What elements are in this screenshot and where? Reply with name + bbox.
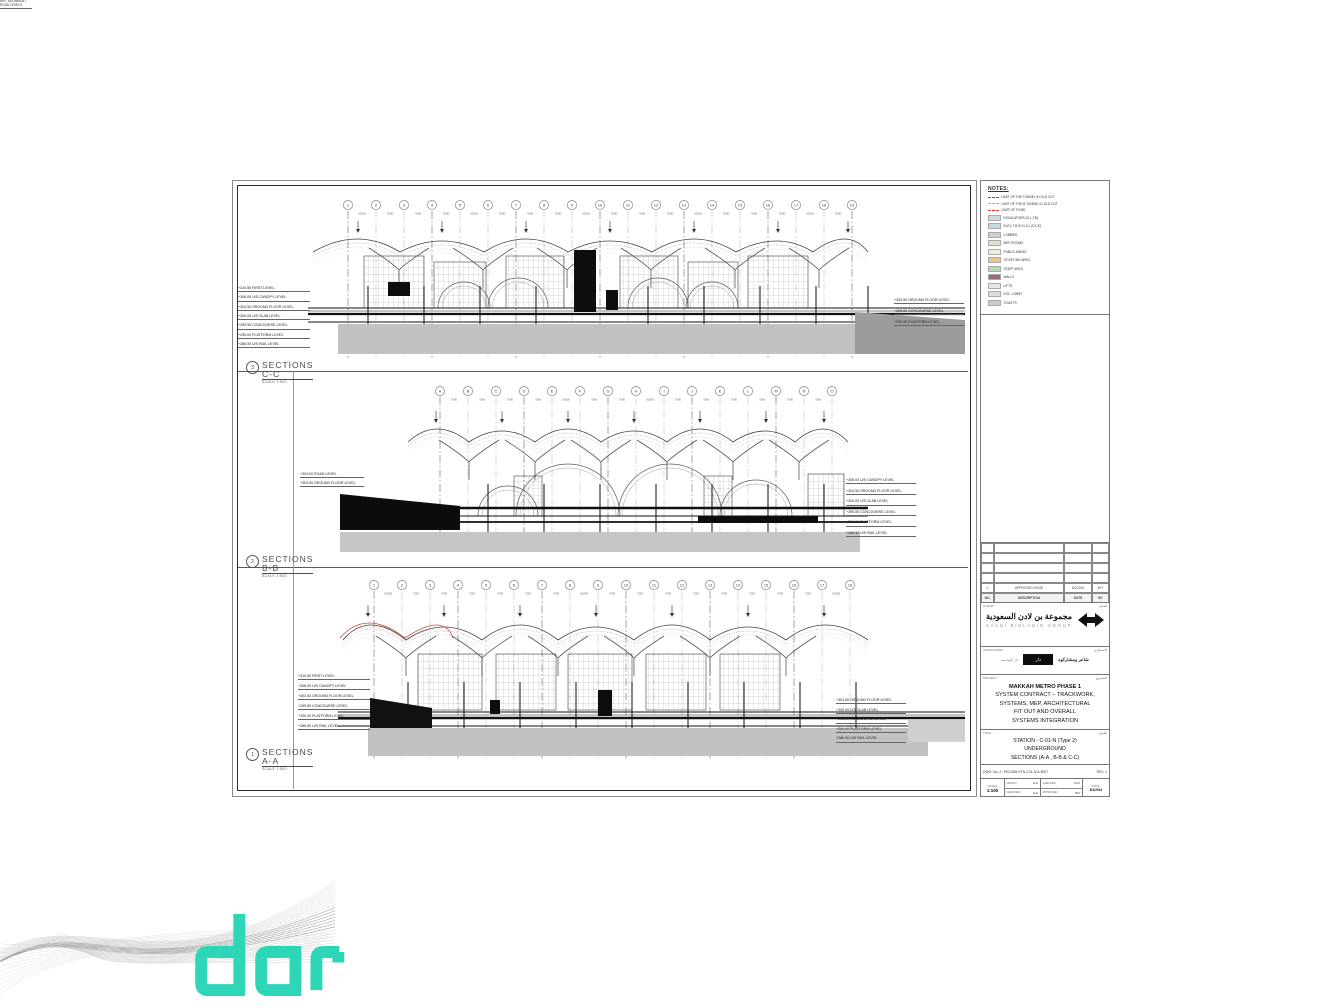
section-title-text: SECTIONS B-B xyxy=(262,555,313,574)
grid-bubble-label: I xyxy=(663,389,664,394)
level-label: +310.50 FIRST LEVEL xyxy=(238,287,310,292)
canopy-path xyxy=(408,441,848,454)
grid-bubble-label: 13 xyxy=(708,583,713,588)
legend-color-swatch xyxy=(988,232,1001,238)
level-label: +286.50 U/S RAIL LEVEL xyxy=(298,725,370,730)
grid-dimension: 7500 xyxy=(667,211,674,215)
legend-row: LIMIT OF THE B TUNNEL IG GLD CUT xyxy=(988,202,1109,206)
core-element xyxy=(606,290,618,310)
level-label: +290.00 PLATFORM LEVEL xyxy=(836,728,906,733)
canopy-path xyxy=(343,625,868,640)
canopy-node xyxy=(698,419,702,423)
grid-dimension: 10000 xyxy=(470,211,478,215)
grid-bubble-label: 15 xyxy=(738,203,743,208)
red-canopy-path xyxy=(340,623,453,638)
revision-cell xyxy=(1064,553,1092,563)
revision-cell xyxy=(1064,573,1092,583)
glazed-facade xyxy=(704,476,732,516)
info-cell-date: DATE6/1/2014 xyxy=(1083,779,1109,797)
canopy-node xyxy=(594,613,598,617)
info-value: 1:100 xyxy=(987,788,998,793)
consultant-logo-box: دار xyxy=(1023,654,1053,665)
project-title-lines: MAKKAH METRO PHASE 1SYSTEM CONTRACT – TR… xyxy=(981,683,1109,726)
title-label-ar: العنوان xyxy=(1098,731,1107,735)
level-label: +300.00 U/S SLAB LEVEL xyxy=(846,500,916,505)
revision-cell xyxy=(981,543,994,553)
level-label: +286.50 U/S RAIL LEVEL xyxy=(846,532,916,537)
legend-row: PUBLIC AREAS xyxy=(988,249,1109,255)
canopy-node xyxy=(692,229,696,233)
level-label: +304.00 ROAD LEVEL xyxy=(300,473,364,478)
grid-bubble-label: M xyxy=(774,389,777,394)
project-title-line: MAKKAH METRO PHASE 1 xyxy=(981,683,1109,692)
consultant-right-text: شاعر ومشاركوه xyxy=(1058,657,1089,663)
glazed-facade xyxy=(688,262,738,308)
revision-cell xyxy=(1064,543,1092,553)
glazed-facade xyxy=(514,476,542,516)
revision-cell: 0 xyxy=(981,583,994,593)
consultant-logo-text: دار xyxy=(1036,657,1041,663)
info-pair: DATE6/1/2014 xyxy=(1083,779,1109,797)
drawing-title-block: TITLE : العنوان STATION - C-01-N (Type 2… xyxy=(981,729,1109,765)
grid-dimension: 10000 xyxy=(562,397,570,401)
glazed-facade xyxy=(418,654,482,710)
revision-cell xyxy=(981,573,994,583)
level-label: +295.50 CONCOURSE LEVEL xyxy=(846,511,916,516)
revision-cell xyxy=(981,553,994,563)
grid-dimension: 7500 xyxy=(535,397,542,401)
revision-number: REV. 1 xyxy=(1097,770,1107,774)
grid-bubble-label: 12 xyxy=(654,203,659,208)
info-label: CHECKED xyxy=(1043,782,1056,785)
client-name-arabic: مجموعة بن لادن السعودية xyxy=(986,612,1073,621)
grid-dimension: 10000 xyxy=(358,211,366,215)
dar-letter-r xyxy=(316,952,339,990)
level-label: +306.00 U/S CANOPY LEVEL xyxy=(846,479,916,484)
drawing-title-line: STATION - C-01-N (Type 2) xyxy=(981,737,1109,745)
section-scale-text: SCALE 1:500 xyxy=(262,574,313,578)
canopy-node xyxy=(822,419,826,423)
grid-dimension: 7500 xyxy=(591,397,598,401)
detail-number-bubble: 3 xyxy=(246,361,259,374)
info-label: DRAWN xyxy=(1007,782,1017,785)
grid-dimension: 7500 xyxy=(731,397,738,401)
grid-dimension: 7500 xyxy=(479,397,486,401)
info-cell-drawn: DRAWNA.A.DESIGNEDA.A. xyxy=(1005,779,1041,797)
canopy-node xyxy=(776,229,780,233)
revision-cell xyxy=(981,563,994,573)
legend-row: LIFTS xyxy=(988,283,1109,289)
grid-dimension: 7500 xyxy=(553,591,560,595)
level-label: +290.00 PLATFORM LEVEL xyxy=(238,334,310,339)
client-label-ar: العميل xyxy=(1099,604,1107,608)
section-scale-text: SCALE 1:500 xyxy=(262,767,313,771)
revision-cell: W.Y xyxy=(1092,583,1109,593)
grid-dimension: 7500 xyxy=(387,211,394,215)
glazed-facade xyxy=(720,654,780,710)
legend-color-swatch xyxy=(988,274,1001,280)
legend-rows: LIMIT OF THE TUNNEL ID GLD CUTLIMIT OF T… xyxy=(981,195,1109,306)
info-label: APPROVED xyxy=(1043,791,1058,794)
grid-bubble-label: B xyxy=(467,389,470,394)
project-label: PROJECT : xyxy=(983,676,999,680)
grid-dimension: 7500 xyxy=(441,591,448,595)
grid-dimension: 7500 xyxy=(693,591,700,595)
red-canopy-path xyxy=(340,627,453,642)
grid-bubble-label: 10 xyxy=(624,583,629,588)
grid-dimension: 7500 xyxy=(749,591,756,595)
legend-dash-swatch xyxy=(988,197,999,198)
level-label: +290.00 PLATFORM LEVEL xyxy=(894,321,964,326)
grid-bubble-label: C xyxy=(495,389,498,394)
grid-bubble-label: 13 xyxy=(682,203,687,208)
info-rows: DRAWNA.A.DESIGNEDA.A. xyxy=(1005,779,1040,797)
canopy-path xyxy=(408,429,848,442)
drawing-title-line: UNDERGROUND xyxy=(981,745,1109,753)
legend-row: TOILETS xyxy=(988,300,1109,306)
canopy-node xyxy=(822,613,826,617)
grid-dimension: 7500 xyxy=(777,591,784,595)
title-label: TITLE : xyxy=(983,731,993,735)
grid-bubble-label: A xyxy=(439,389,442,394)
project-title-line: SYSTEMS INTEGRATION xyxy=(981,717,1109,726)
legend-row: WALLS xyxy=(988,274,1109,280)
grid-bubble-label: 15 xyxy=(764,583,769,588)
grid-bubble-label: E xyxy=(551,389,554,394)
canopy-node xyxy=(366,613,370,617)
reference-note: REF. ALIGNMENT ROAD LEVELS xyxy=(0,0,32,9)
level-label: +310.50 FIRST LEVEL xyxy=(298,675,370,680)
grid-dimension: 7500 xyxy=(835,211,842,215)
consultant-label: CONSULTANT : xyxy=(983,648,1005,652)
level-label: +290.00 PLATFORM LEVEL xyxy=(846,521,916,526)
legend-heading: NOTES: xyxy=(988,186,1109,192)
grid-bubble-label: N xyxy=(803,389,806,394)
legend-row: TICKETING AREA xyxy=(988,257,1109,263)
project-title-line: FIT OUT AND OVERALL xyxy=(981,708,1109,717)
grid-bubble-label: 14 xyxy=(736,583,741,588)
legend-row: ELEV T-B ID N-3-L (D-CE) xyxy=(988,223,1109,229)
canopy-node xyxy=(846,229,850,233)
canopy-node xyxy=(518,613,522,617)
legend-entry-label: TICKETING AREA xyxy=(1004,258,1030,262)
grid-dimension: 7500 xyxy=(665,591,672,595)
level-label: +286.50 U/S RAIL LEVEL xyxy=(238,343,310,348)
info-row: DESIGNEDA.A. xyxy=(1005,788,1040,798)
legend-row: STAFF AREA xyxy=(988,266,1109,272)
canopy-node xyxy=(524,229,528,233)
section-title-text-group: SECTIONS A-ASCALE 1:500 xyxy=(262,748,313,771)
revision-cell xyxy=(994,553,1064,563)
project-title-line: SYSTEM CONTRACT – TRACKWORK, xyxy=(981,691,1109,700)
grid-dimension: 10000 xyxy=(384,591,392,595)
underground-mass xyxy=(908,720,965,742)
info-row: APPROVEDW.Y xyxy=(1041,788,1082,798)
legend-dash-swatch xyxy=(988,203,999,204)
grid-dimension: 7500 xyxy=(507,397,514,401)
grid-dimension: 7500 xyxy=(469,591,476,595)
info-grid: SCALE1:100DRAWNA.A.DESIGNEDA.A.CHECKEDN.… xyxy=(981,778,1109,797)
legend-color-swatch xyxy=(988,249,1001,255)
level-label: +303.50 GROUND FLOOR LEVEL xyxy=(298,695,370,700)
underground-mass xyxy=(340,532,860,552)
grid-dimension: 7500 xyxy=(527,211,534,215)
grid-dimension: 7500 xyxy=(451,397,458,401)
legend-color-swatch xyxy=(988,291,1001,297)
legend-entry-label: ESC. LOBBY xyxy=(1004,292,1023,296)
canopy-node xyxy=(356,229,360,233)
legend-color-swatch xyxy=(988,215,1001,221)
info-row: DRAWNA.A. xyxy=(1005,779,1040,788)
grid-dimension: 7500 xyxy=(815,397,822,401)
revision-cell: APPROVED ISSUE xyxy=(994,583,1064,593)
grid-dimension: 7500 xyxy=(787,397,794,401)
revision-cell xyxy=(1064,563,1092,573)
drawing-title-lines: STATION - C-01-N (Type 2)UNDERGROUNDSECT… xyxy=(981,737,1109,762)
legend-entry-label: LIMIT OF THE B TUNNEL IG GLD CUT xyxy=(1002,202,1058,206)
client-block: CLIENT : العميل مجموعة بن لادن السعودية … xyxy=(981,602,1109,647)
info-cell-scale: SCALE1:100 xyxy=(981,779,1005,797)
arch-outline xyxy=(724,484,788,516)
level-label: +303.50 GROUND FLOOR LEVEL xyxy=(300,482,364,487)
legend-row: LIMIT OF TH-BD xyxy=(988,208,1109,212)
legend-row: LOBBIES xyxy=(988,232,1109,238)
core-element xyxy=(388,282,410,296)
canopy-node xyxy=(608,229,612,233)
canopy-node xyxy=(434,419,438,423)
glazed-facade xyxy=(496,654,556,710)
legend-entry-label: ESCALATORS (D-L-TB) xyxy=(1004,216,1038,220)
glazed-facade xyxy=(506,256,564,308)
core-element xyxy=(598,690,612,716)
level-label: +300.00 U/S SLAB LEVEL xyxy=(238,315,310,320)
legend: NOTES: LIMIT OF THE TUNNEL ID GLD CUTLIM… xyxy=(981,181,1109,315)
legend-color-swatch xyxy=(988,223,1001,229)
consultant-left-text: دار الهندسة xyxy=(1001,658,1018,662)
sbg-arrow-logo xyxy=(1078,612,1104,628)
grid-dimension: 7500 xyxy=(751,211,758,215)
drawing-number: DWG. No. 2 : PK3-MM-STN-C01-N-A-5007 xyxy=(983,770,1048,774)
level-label: +306.00 U/S CANOPY LEVEL xyxy=(238,296,310,301)
legend-entry-label: LIFTS xyxy=(1004,284,1013,288)
legend-entry-label: WALLS xyxy=(1004,275,1015,279)
legend-color-swatch xyxy=(988,240,1001,246)
dar-letter-d xyxy=(201,914,245,990)
grid-dimension: 7500 xyxy=(639,211,646,215)
info-pair: SCALE1:100 xyxy=(981,779,1004,797)
info-cell-checked: CHECKEDN.O.APPROVEDW.Y xyxy=(1041,779,1083,797)
project-block: PROJECT : المشروع MAKKAH METRO PHASE 1SY… xyxy=(981,674,1109,730)
project-title-line: SYSTEMS, MEP, ARCHITECTURAL xyxy=(981,700,1109,709)
glazed-facade xyxy=(646,654,706,710)
grid-bubble-label: 17 xyxy=(820,583,825,588)
drawing-number-row: DWG. No. 2 : PK3-MM-STN-C01-N-A-5007 REV… xyxy=(981,764,1109,778)
core-element xyxy=(490,700,500,714)
level-label: +295.50 CONCOURSE LEVEL xyxy=(298,705,370,710)
glazed-facade xyxy=(620,256,678,308)
legend-color-swatch xyxy=(988,283,1001,289)
legend-entry-label: PUBLIC AREAS xyxy=(1004,250,1027,254)
level-label: +303.50 GROUND FLOOR LEVEL xyxy=(894,299,964,304)
glazed-facade xyxy=(748,256,808,308)
level-label: +303.50 GROUND FLOOR LEVEL xyxy=(238,306,310,311)
section-drawing-C-C: 1000075007500750010000750075007500100007… xyxy=(268,190,968,368)
glazed-facade xyxy=(434,262,486,308)
grid-bubble-label: H xyxy=(635,389,638,394)
grid-bubble-label: 17 xyxy=(794,203,799,208)
grid-dimension: 7500 xyxy=(443,211,450,215)
legend-entry-label: LOBBIES xyxy=(1004,233,1018,237)
canopy-path xyxy=(408,433,848,446)
level-label: +303.50 GROUND FLOOR LEVEL xyxy=(846,490,916,495)
title-block-panel: NOTES: LIMIT OF THE TUNNEL ID GLD CUTLIM… xyxy=(980,180,1110,797)
project-label-ar: المشروع xyxy=(1096,676,1107,680)
canopy-node xyxy=(632,419,636,423)
canopy-node xyxy=(746,613,750,617)
section-divider-2 xyxy=(238,567,968,568)
revision-cell xyxy=(1092,553,1109,563)
legend-color-swatch xyxy=(988,266,1001,272)
grid-dimension: 7500 xyxy=(721,591,728,595)
grid-dimension: 7500 xyxy=(499,211,506,215)
grid-bubble-label: 18 xyxy=(822,203,827,208)
grid-dimension: 7500 xyxy=(723,211,730,215)
grid-dimension: 7500 xyxy=(805,591,812,595)
legend-entry-label: STAFF AREA xyxy=(1004,267,1023,271)
legend-color-swatch xyxy=(988,257,1001,263)
section-title-text: SECTIONS A-A xyxy=(262,748,313,767)
grid-dimension: 7500 xyxy=(759,397,766,401)
grid-bubble-label: 12 xyxy=(680,583,685,588)
grid-bubble-label: 18 xyxy=(848,583,853,588)
info-value: N.O. xyxy=(1075,781,1081,785)
underground-mass xyxy=(338,324,898,354)
section-title-text-group: SECTIONS C-CSCALE 1:500 xyxy=(262,361,313,384)
canopy-node xyxy=(764,419,768,423)
canopy-node xyxy=(566,419,570,423)
revision-cell xyxy=(1092,563,1109,573)
info-row: CHECKEDN.O. xyxy=(1041,779,1082,788)
grid-dimension: 10000 xyxy=(832,591,840,595)
revision-cell xyxy=(994,543,1064,553)
section-divider-1 xyxy=(238,371,968,372)
grid-bubble-label: 10 xyxy=(598,203,603,208)
grid-dimension: 10000 xyxy=(582,211,590,215)
section-title-text-group: SECTIONS B-BSCALE 1:500 xyxy=(262,555,313,578)
annotation-overlays: +310.50 FIRST LEVEL+306.00 U/S CANOPY LE… xyxy=(0,0,32,9)
section-title-B-B: 2SECTIONS B-BSCALE 1:500 xyxy=(246,555,313,578)
grid-dimension: 10000 xyxy=(646,397,654,401)
legend-entry-label: ELEV T-B ID N-3-L (D-CE) xyxy=(1004,224,1042,228)
level-label: +300.00 U/S SLAB LEVEL xyxy=(836,709,906,714)
grid-dimension: 7500 xyxy=(555,211,562,215)
grid-bubble-label: J xyxy=(691,389,693,394)
canopy-node xyxy=(500,419,504,423)
revision-table: 0APPROVED ISSUE6/1/2014W.YNO.DESCRIPTION… xyxy=(981,542,1109,603)
legend-row: MEP ROOMS xyxy=(988,240,1109,246)
grid-dimension: 10000 xyxy=(694,211,702,215)
legend-entry-label: LIMIT OF TH-BD xyxy=(1002,208,1026,212)
info-value: 6/1/2014 xyxy=(1090,788,1102,792)
grid-dimension: 10000 xyxy=(580,591,588,595)
grid-bubble-label: 14 xyxy=(710,203,715,208)
section-title-C-C: 3SECTIONS C-CSCALE 1:500 xyxy=(246,361,313,384)
grid-dimension: 7500 xyxy=(497,591,504,595)
legend-entry-label: MEP ROOMS xyxy=(1004,241,1024,245)
grid-dimension: 7500 xyxy=(779,211,786,215)
page: { "brand": {"logo_text": "dar", "teal": … xyxy=(0,0,1344,1008)
grid-dimension: 7500 xyxy=(619,397,626,401)
section-mass xyxy=(340,494,460,530)
level-label: +290.00 PLATFORM LEVEL xyxy=(298,715,370,720)
section-scale-text: SCALE 1:500 xyxy=(262,380,313,384)
grid-bubble-label: G xyxy=(606,389,609,394)
grid-dimension: 10000 xyxy=(806,211,814,215)
revision-cell xyxy=(1092,573,1109,583)
grid-dimension: 7500 xyxy=(703,397,710,401)
detail-number-bubble: 1 xyxy=(246,748,259,761)
legend-row: ESC. LOBBY xyxy=(988,291,1109,297)
level-label: +303.50 GROUND FLOOR LEVEL xyxy=(836,699,906,704)
info-label: DESIGNED xyxy=(1007,791,1021,794)
grid-bubble-label: K xyxy=(719,389,722,394)
consultant-label-ar: الاستشاري xyxy=(1094,648,1107,652)
level-label: +295.50 CONCOURSE LEVEL xyxy=(238,324,310,329)
level-label: +295.50 CONCOURSE LEVEL xyxy=(894,310,964,315)
canopy-node xyxy=(670,613,674,617)
legend-color-swatch xyxy=(988,300,1001,306)
grid-dimension: 7500 xyxy=(609,591,616,595)
grid-dimension: 7500 xyxy=(675,397,682,401)
info-rows: CHECKEDN.O.APPROVEDW.Y xyxy=(1041,779,1082,797)
legend-row: ESCALATORS (D-L-TB) xyxy=(988,215,1109,221)
grid-dimension: 7500 xyxy=(611,211,618,215)
core-element xyxy=(574,250,596,312)
detail-number-bubble: 2 xyxy=(246,555,259,568)
canopy-node xyxy=(440,229,444,233)
core-element xyxy=(698,516,818,523)
grid-bubble-label: O xyxy=(830,389,833,394)
client-name-english: SAUDI BINLADIN GROUP xyxy=(986,623,1073,628)
glazed-facade xyxy=(808,474,844,516)
level-label: +306.00 U/S CANOPY LEVEL xyxy=(298,685,370,690)
level-label: +286.50 U/S RAIL LEVEL xyxy=(836,737,906,742)
drawing-title-line: SECTIONS (A-A , B-B & C-C) xyxy=(981,754,1109,762)
legend-entry-label: LIMIT OF THE TUNNEL ID GLD CUT xyxy=(1002,195,1055,199)
info-value: W.Y xyxy=(1075,791,1080,795)
grid-dimension: 7500 xyxy=(413,591,420,595)
grid-bubble-label: 16 xyxy=(792,583,797,588)
revision-cell: 6/1/2014 xyxy=(1064,583,1092,593)
info-value: A.A. xyxy=(1033,791,1038,795)
section-mass xyxy=(855,312,965,354)
legend-dash-swatch xyxy=(988,210,999,211)
grid-dimension: 7500 xyxy=(525,591,532,595)
level-label: +295.50 CONCOURSE LEVEL xyxy=(836,718,906,723)
grid-bubble-label: D xyxy=(523,389,526,394)
grid-dimension: 7500 xyxy=(637,591,644,595)
grid-dimension: 7500 xyxy=(415,211,422,215)
grid-bubble-label: 16 xyxy=(766,203,771,208)
legend-entry-label: TOILETS xyxy=(1004,301,1017,305)
tree-column xyxy=(505,440,565,480)
revision-cell xyxy=(994,563,1064,573)
consultant-block: CONSULTANT : الاستشاري دار الهندسة دار ش… xyxy=(981,646,1109,675)
section-title-A-A: 1SECTIONS A-ASCALE 1:500 xyxy=(246,748,313,771)
section-title-text: SECTIONS C-C xyxy=(262,361,313,380)
grid-bubble-label: 19 xyxy=(850,203,855,208)
revision-cell xyxy=(994,573,1064,583)
